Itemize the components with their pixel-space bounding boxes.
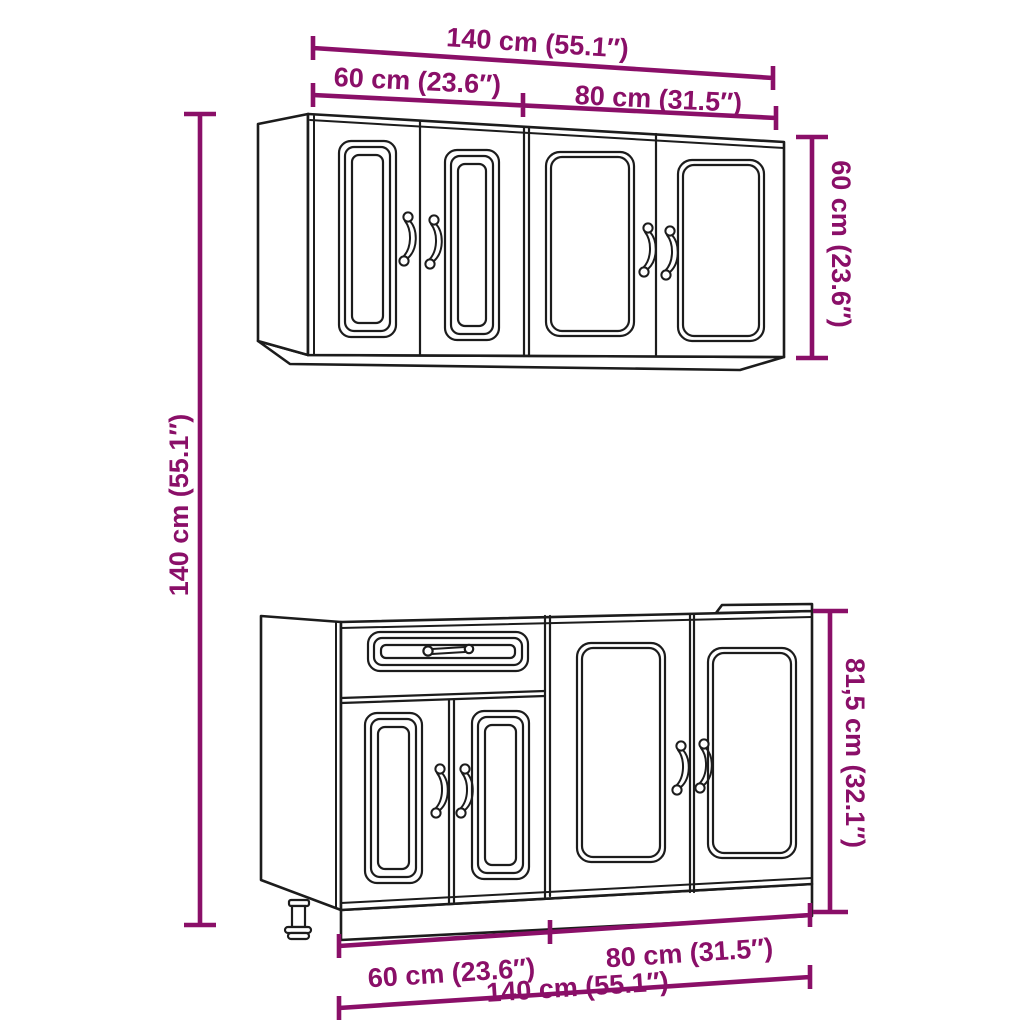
base-cabinet [261, 604, 812, 940]
wall-cabinet [258, 114, 784, 370]
dim-top-right-section-label: 80 cm (31.5″) [574, 80, 743, 118]
dim-wall-cabinet-height: 60 cm (23.6″) [796, 137, 856, 358]
dim-wall-cabinet-height-label: 60 cm (23.6″) [826, 160, 856, 328]
dim-base-cabinet-height-label: 81,5 cm (32.1″) [840, 658, 870, 848]
diagram-canvas: 140 cm (55.1″) 60 cm (23.6″) 80 cm (31.5… [0, 0, 1024, 1024]
dim-bottom-right-section-label: 80 cm (31.5″) [605, 933, 774, 974]
base-door-2-panel [472, 711, 529, 879]
product-dimension-diagram: 140 cm (55.1″) 60 cm (23.6″) 80 cm (31.5… [0, 0, 1024, 1024]
base-cabinet-side-panel [261, 616, 341, 910]
wall-door-4-panel [678, 160, 764, 341]
wall-door-3-panel [546, 152, 634, 336]
wall-cabinet-side-panel [258, 114, 308, 355]
base-door-3-panel [577, 643, 665, 862]
dim-base-cabinet-height: 81,5 cm (32.1″) [813, 611, 870, 912]
dim-overall-height-label: 140 cm (55.1″) [164, 414, 194, 597]
base-door-4-panel [708, 648, 796, 858]
base-door-1-panel [365, 713, 422, 883]
base-drawer-panel [368, 632, 528, 671]
dim-top-left-section-label: 60 cm (23.6″) [333, 62, 502, 100]
base-cabinet-foot [285, 900, 311, 939]
wall-door-2-panel [445, 150, 499, 340]
dim-overall-height: 140 cm (55.1″) [164, 114, 216, 925]
base-cabinet-top-back-edge [716, 604, 812, 613]
wall-door-1-panel [339, 141, 396, 337]
